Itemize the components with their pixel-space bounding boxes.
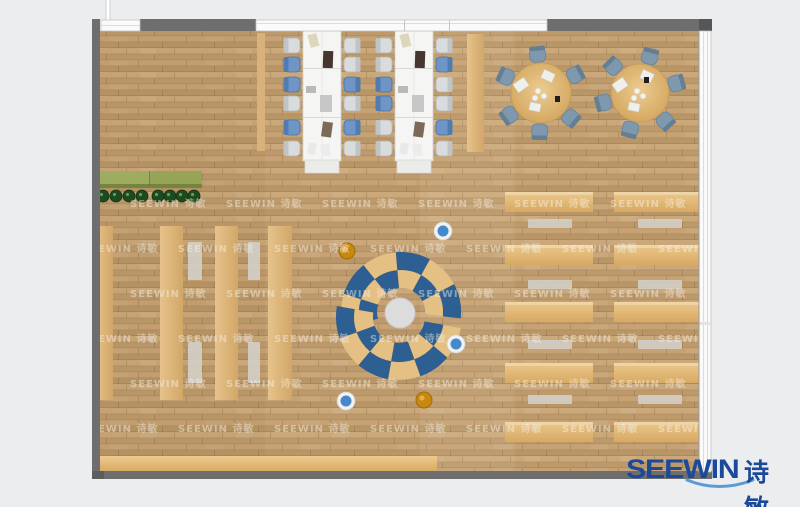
window-top-left bbox=[101, 20, 140, 31]
pouf-blue bbox=[438, 226, 449, 237]
bookshelf-strip bbox=[215, 226, 238, 400]
chair-back bbox=[356, 77, 361, 92]
plant-leaf bbox=[155, 193, 158, 196]
planter bbox=[98, 171, 202, 188]
shelf-strip-narrow bbox=[257, 33, 265, 151]
chair-back bbox=[356, 141, 361, 156]
chair-back bbox=[356, 96, 361, 111]
brand-logo-cn-text: 诗敏 bbox=[744, 453, 796, 507]
window-mullion bbox=[404, 20, 405, 31]
plant-leaf bbox=[126, 193, 129, 196]
desk-highlight bbox=[614, 302, 699, 305]
chair-back bbox=[356, 38, 361, 53]
pouf-blue bbox=[451, 339, 462, 350]
desk-highlight bbox=[505, 422, 593, 425]
bench bbox=[528, 395, 572, 404]
floorplan-canvas: SEEWIN 诗敏SEEWIN 诗敏SEEWIN 诗敏SEEWIN 诗敏SEEW… bbox=[0, 0, 800, 507]
chair-back bbox=[284, 77, 289, 92]
pouf-orange bbox=[416, 392, 432, 408]
brand-logo: SEEWIN 诗敏 bbox=[626, 452, 796, 494]
table-item bbox=[412, 95, 424, 112]
exterior-wall-line bbox=[106, 0, 111, 20]
bottom-counter bbox=[100, 456, 437, 472]
table-item bbox=[306, 86, 316, 93]
dark-item bbox=[555, 96, 560, 102]
desk-highlight bbox=[505, 302, 593, 305]
chair-back bbox=[448, 77, 453, 92]
plant-leaf bbox=[139, 193, 142, 196]
pouf-orange bbox=[339, 243, 355, 259]
plate bbox=[634, 88, 640, 94]
bench bbox=[528, 340, 572, 349]
wall-top-segment-2 bbox=[547, 19, 704, 31]
bench bbox=[248, 342, 260, 383]
round-table-chair bbox=[531, 124, 548, 141]
chair-back bbox=[448, 57, 453, 72]
wall-bottom-left-cap bbox=[92, 471, 104, 479]
table-item bbox=[398, 86, 408, 93]
plate bbox=[535, 88, 541, 94]
plant bbox=[136, 190, 148, 202]
table-item bbox=[323, 51, 334, 68]
plant-leaf bbox=[191, 193, 194, 196]
plant bbox=[188, 190, 200, 202]
window-right bbox=[699, 31, 711, 472]
chair-back bbox=[356, 57, 361, 72]
desk-highlight bbox=[505, 245, 593, 248]
chair-back bbox=[448, 120, 453, 135]
center-table bbox=[385, 298, 415, 328]
chair-back bbox=[448, 38, 453, 53]
bench bbox=[528, 280, 572, 289]
wall-top-segment-1 bbox=[140, 19, 256, 31]
dark-item bbox=[644, 77, 649, 83]
bookshelf-strip bbox=[268, 226, 292, 400]
bench bbox=[248, 242, 260, 280]
chair-back bbox=[284, 57, 289, 72]
table-item bbox=[412, 143, 423, 156]
chair-back bbox=[376, 120, 381, 135]
bench bbox=[638, 395, 682, 404]
chair-back bbox=[376, 57, 381, 72]
plant-leaf bbox=[167, 193, 170, 196]
chair-back bbox=[448, 96, 453, 111]
wall-top-right-cap bbox=[699, 19, 712, 31]
plant bbox=[110, 190, 122, 202]
brand-logo-text: SEEWIN bbox=[626, 454, 739, 485]
chair-back bbox=[284, 141, 289, 156]
round-table-chair bbox=[529, 45, 546, 62]
plate bbox=[640, 93, 646, 99]
desk-highlight bbox=[505, 192, 593, 195]
table-item bbox=[321, 121, 333, 137]
pouf-highlight bbox=[343, 247, 348, 252]
plant bbox=[123, 190, 135, 202]
shelf-strip-wide bbox=[467, 34, 484, 152]
round-table-top bbox=[611, 64, 669, 122]
wall-bottom bbox=[92, 471, 712, 479]
table-item bbox=[320, 143, 331, 156]
plant-leaf bbox=[113, 193, 116, 196]
desk-highlight bbox=[505, 363, 593, 366]
bench bbox=[638, 280, 682, 289]
chair-back bbox=[376, 141, 381, 156]
chair-back bbox=[376, 38, 381, 53]
pouf-highlight bbox=[420, 396, 425, 401]
chair-back bbox=[448, 141, 453, 156]
bench bbox=[188, 342, 202, 383]
plant bbox=[176, 190, 188, 202]
table-item bbox=[320, 95, 332, 112]
bookshelf-strip bbox=[160, 226, 183, 400]
plant bbox=[152, 190, 164, 202]
table-item bbox=[415, 51, 426, 68]
chair-back bbox=[376, 96, 381, 111]
pouf-blue bbox=[341, 396, 352, 407]
desk-highlight bbox=[614, 192, 699, 195]
plant-leaf bbox=[100, 193, 103, 196]
desk-highlight bbox=[614, 422, 699, 425]
plate bbox=[541, 93, 547, 99]
desk-highlight bbox=[614, 245, 699, 248]
desk-highlight bbox=[614, 363, 699, 366]
chair-back bbox=[284, 38, 289, 53]
bench bbox=[188, 242, 202, 280]
plant-leaf bbox=[179, 193, 182, 196]
window-top-middle bbox=[256, 20, 547, 31]
chair-back bbox=[284, 120, 289, 135]
bench bbox=[638, 219, 682, 228]
window-transom bbox=[699, 322, 711, 325]
plate bbox=[631, 95, 637, 101]
bench bbox=[528, 219, 572, 228]
plant bbox=[164, 190, 176, 202]
floorplan-drawing bbox=[0, 0, 800, 507]
window-mullion bbox=[449, 20, 450, 31]
chair-back bbox=[284, 96, 289, 111]
bench bbox=[638, 340, 682, 349]
chair-back bbox=[376, 77, 381, 92]
plate bbox=[532, 95, 538, 101]
table-item bbox=[413, 121, 425, 137]
wall-left bbox=[92, 19, 100, 479]
chair-back bbox=[356, 120, 361, 135]
round-table-top bbox=[511, 63, 571, 123]
